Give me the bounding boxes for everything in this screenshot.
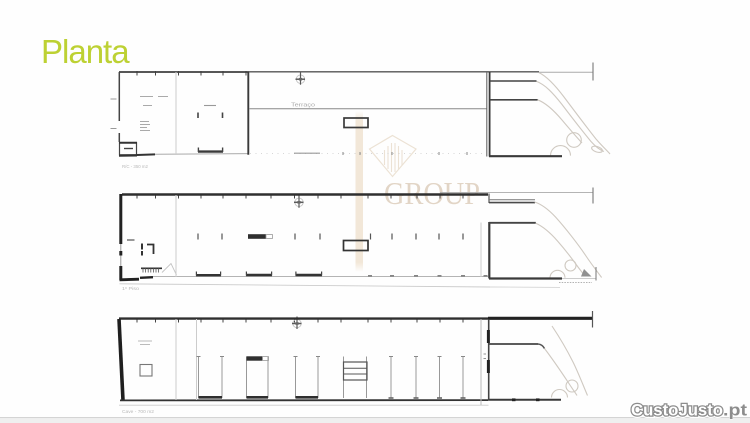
svg-text:Cave - 700 m2: Cave - 700 m2 <box>122 409 155 414</box>
svg-text:Planta: Planta <box>41 33 130 70</box>
svg-text:1º Piso: 1º Piso <box>122 286 140 291</box>
svg-text:.pt: .pt <box>723 402 748 420</box>
svg-text:R/C - 350 m2: R/C - 350 m2 <box>122 164 149 169</box>
svg-text:CustoJusto: CustoJusto <box>631 402 723 420</box>
svg-text:Terraço: Terraço <box>291 102 315 108</box>
